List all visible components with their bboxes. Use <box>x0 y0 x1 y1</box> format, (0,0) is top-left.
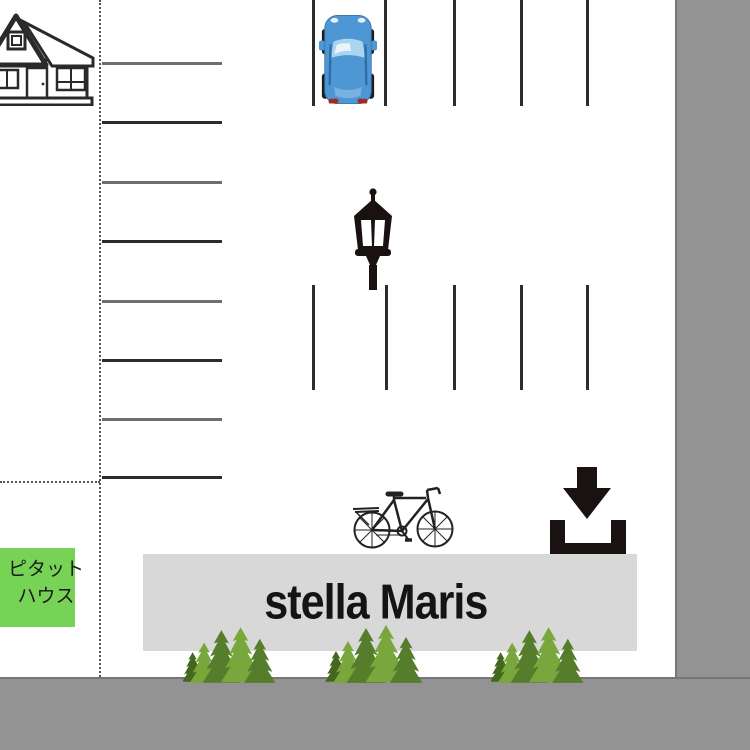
landmark-name-line1: ピタット <box>0 556 92 583</box>
landmark-label: ピタット ハウス <box>0 548 75 627</box>
road-band-right <box>675 0 750 750</box>
parking-line <box>102 121 222 124</box>
parking-line <box>520 285 523 390</box>
road-band-bottom <box>0 677 750 750</box>
conifer-trees-icon <box>324 625 428 687</box>
property-name: stella Maris <box>264 575 487 631</box>
street-lamp-icon <box>348 188 398 292</box>
parking-line <box>102 181 222 184</box>
parking-line <box>102 240 222 243</box>
landmark-name-line2: ハウス <box>0 583 92 610</box>
parking-line <box>586 285 589 390</box>
parking-line <box>312 0 315 106</box>
boundary-dotted-horizontal <box>0 481 100 483</box>
parking-line <box>102 300 222 303</box>
parking-line <box>453 285 456 390</box>
conifer-trees-icon <box>183 627 279 687</box>
parking-line <box>102 359 222 362</box>
entrance-arrow-icon <box>545 462 635 562</box>
parking-line <box>520 0 523 106</box>
bicycle-icon <box>345 478 465 560</box>
parking-line <box>453 0 456 106</box>
parking-line <box>102 476 222 479</box>
boundary-dotted-vertical <box>99 0 101 677</box>
house-icon <box>0 8 97 106</box>
conifer-trees-icon <box>491 627 587 687</box>
parking-line <box>312 285 315 390</box>
parking-line <box>102 418 222 421</box>
parking-line <box>102 62 222 65</box>
parking-line <box>586 0 589 106</box>
parking-line <box>384 0 387 106</box>
car-icon <box>318 13 378 107</box>
access-map: stella Maris ピタット ハウス <box>0 0 750 750</box>
parking-line <box>385 285 388 390</box>
